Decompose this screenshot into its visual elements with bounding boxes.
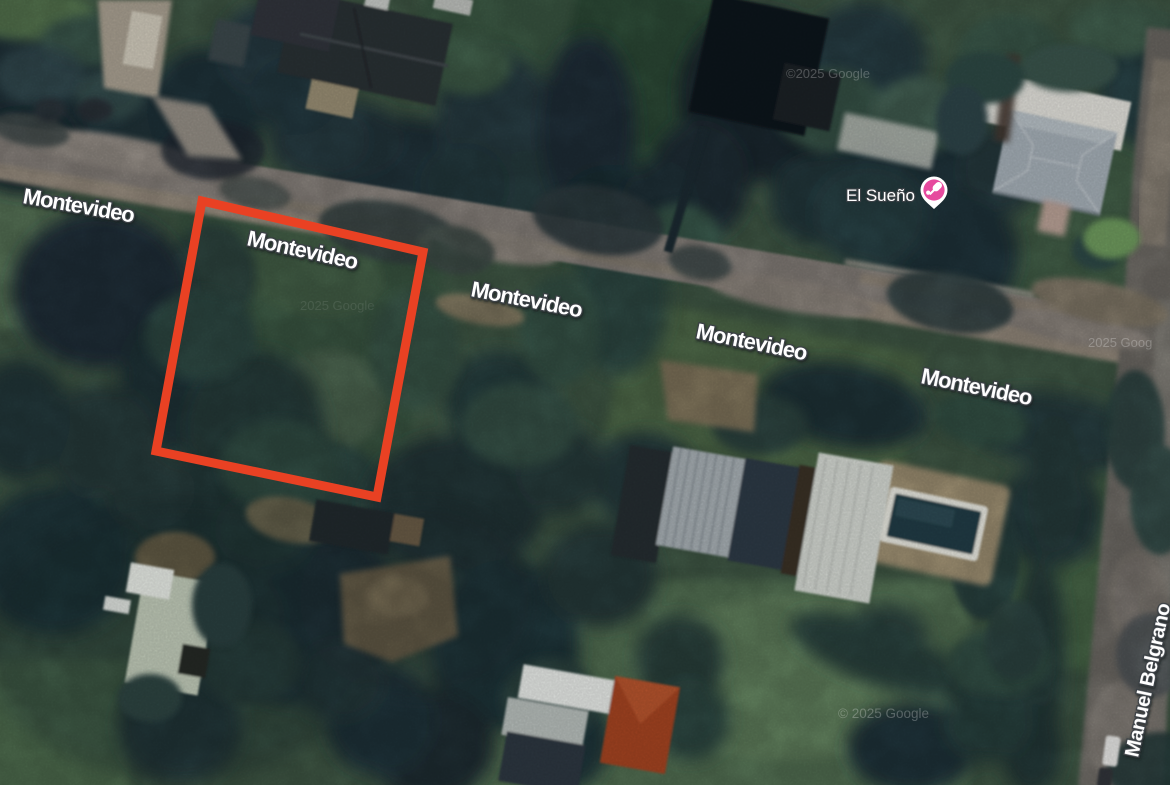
- svg-text:2025 Goog: 2025 Goog: [1088, 335, 1152, 350]
- svg-text:©2025 Google: ©2025 Google: [786, 66, 870, 81]
- svg-text:© 2025 Google: © 2025 Google: [838, 706, 929, 721]
- svg-text:2025 Google: 2025 Google: [300, 298, 374, 313]
- svg-text:El Sueño: El Sueño: [846, 186, 915, 205]
